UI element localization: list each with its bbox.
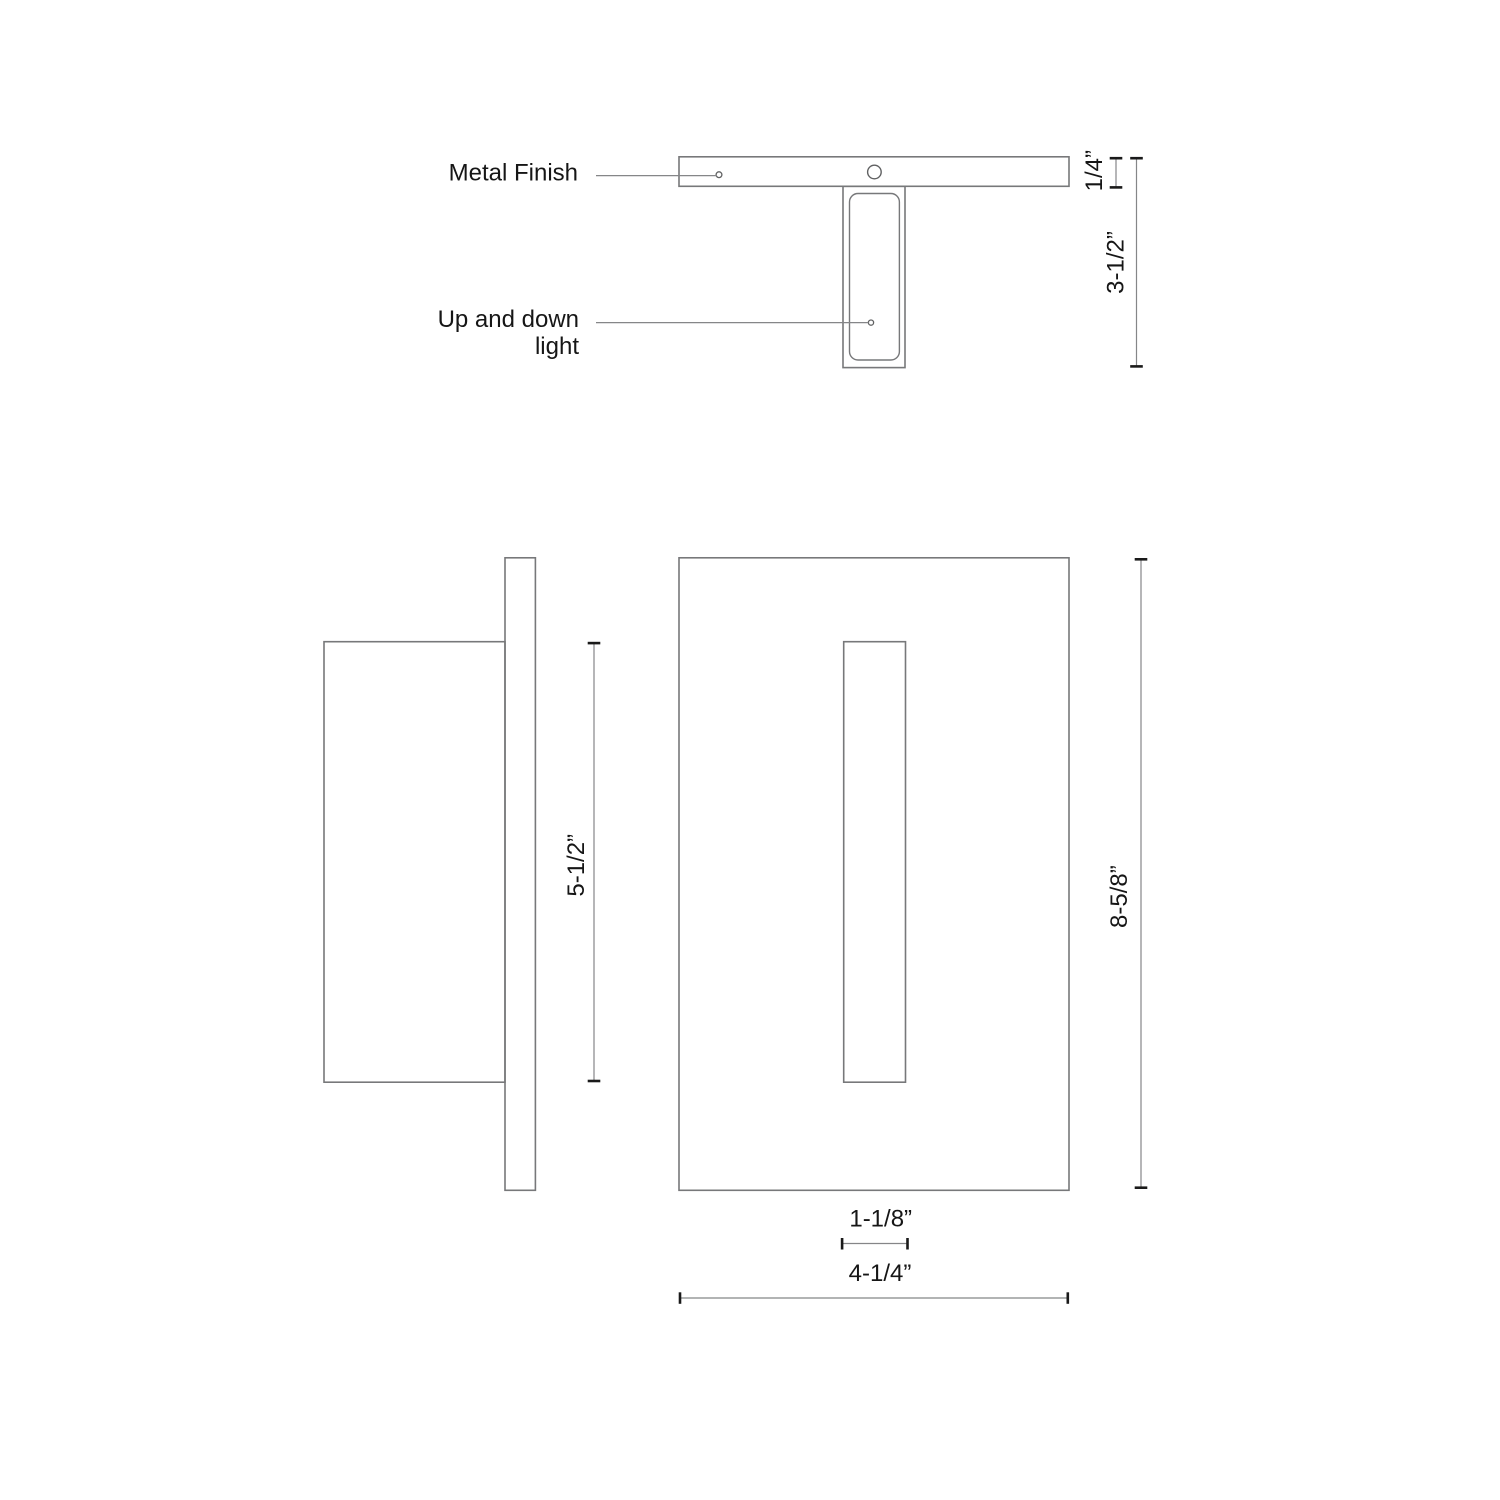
svg-text:4-1/4”: 4-1/4” bbox=[849, 1260, 912, 1287]
svg-text:1/4”: 1/4” bbox=[1081, 150, 1108, 191]
svg-text:light: light bbox=[535, 333, 579, 360]
svg-text:5-1/2”: 5-1/2” bbox=[563, 834, 590, 897]
svg-text:8-5/8”: 8-5/8” bbox=[1106, 865, 1133, 928]
svg-text:Up and down: Up and down bbox=[438, 306, 579, 333]
svg-text:1-1/8”: 1-1/8” bbox=[849, 1206, 912, 1233]
svg-text:Metal Finish: Metal Finish bbox=[449, 160, 578, 187]
svg-text:3-1/2”: 3-1/2” bbox=[1102, 231, 1129, 294]
